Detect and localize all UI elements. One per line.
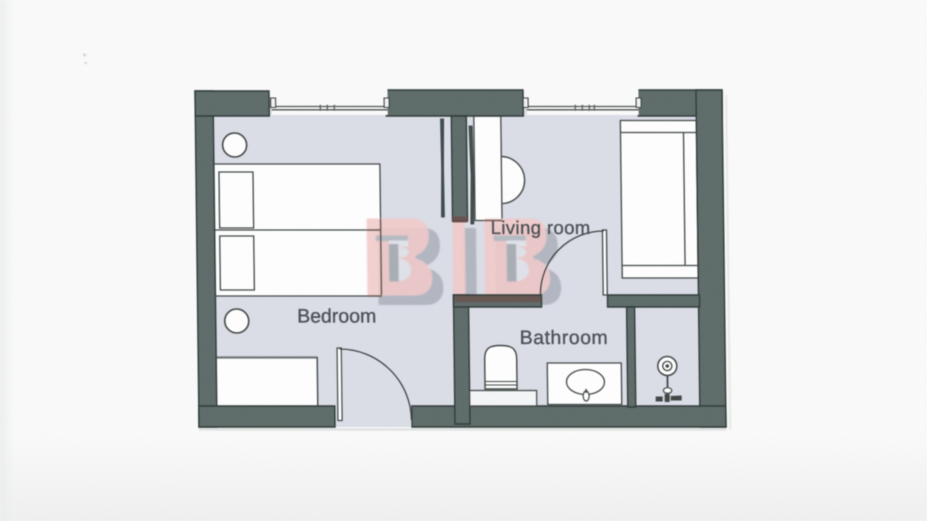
svg-text:Bedroom: Bedroom xyxy=(297,306,376,328)
svg-text:Bathroom: Bathroom xyxy=(520,327,609,349)
svg-text:Living room: Living room xyxy=(491,217,591,238)
